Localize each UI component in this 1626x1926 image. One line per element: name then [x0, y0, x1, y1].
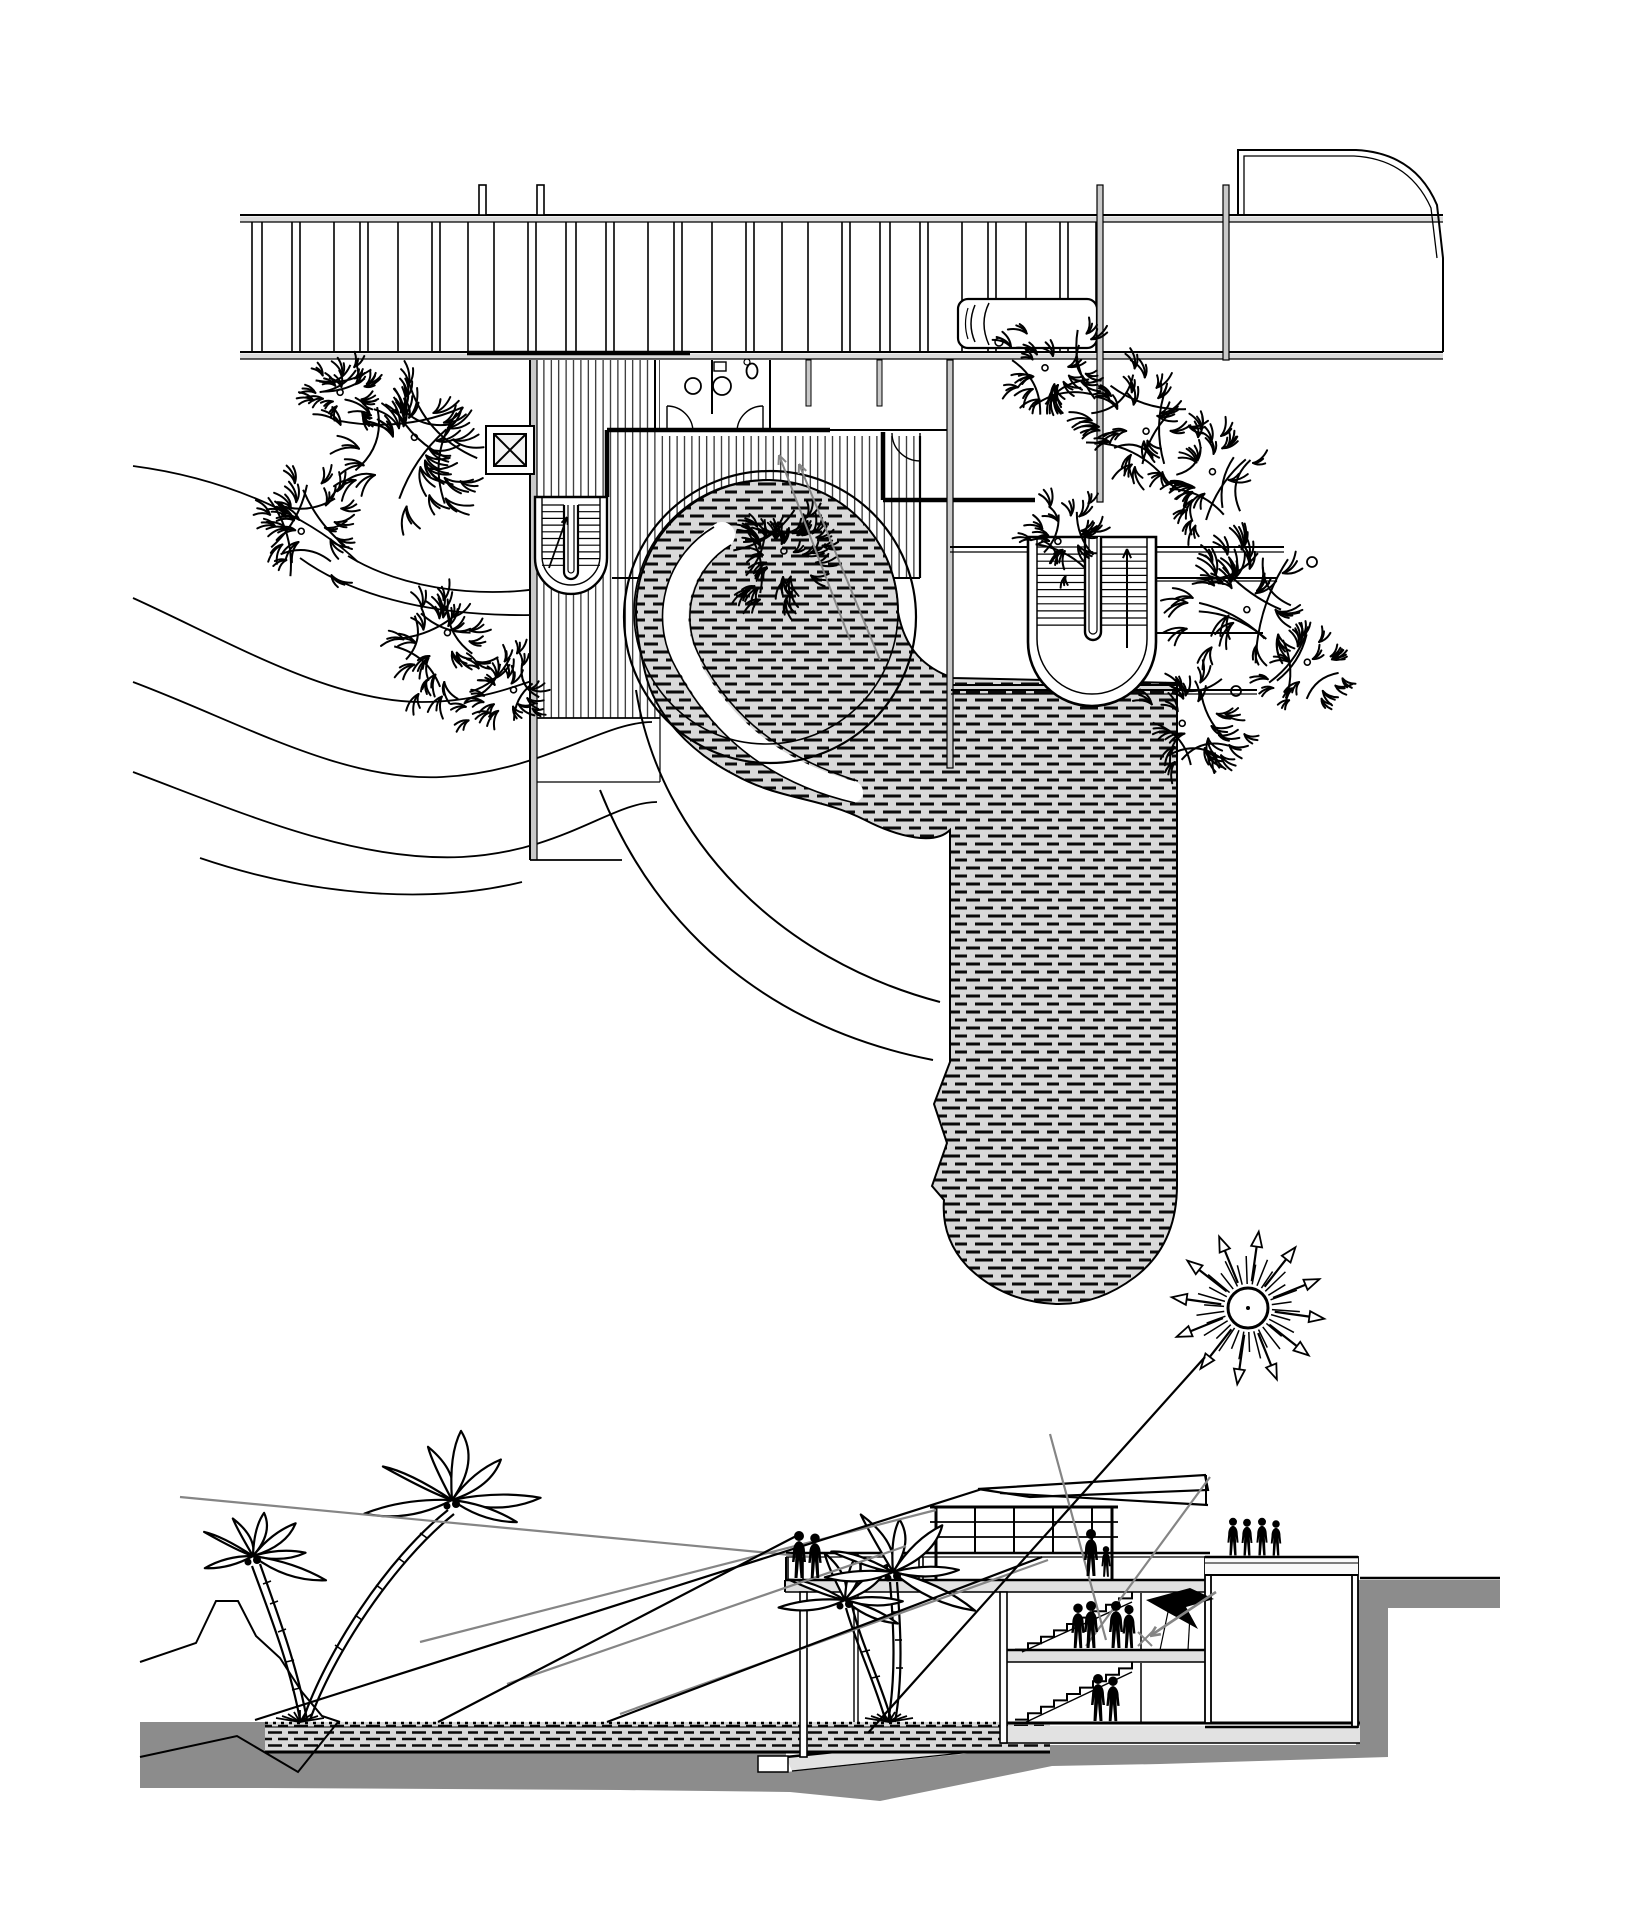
drawing-sheet	[0, 0, 1626, 1926]
plan-tree	[1161, 523, 1302, 669]
person-silhouette	[1242, 1519, 1253, 1556]
person-silhouette	[1227, 1518, 1238, 1556]
plan-tree	[1068, 348, 1208, 489]
plan-tree	[381, 579, 498, 718]
site-plan-view	[133, 150, 1443, 1304]
person-silhouette	[1271, 1520, 1282, 1555]
architectural-drawing	[0, 0, 1626, 1926]
person-silhouette	[1101, 1546, 1110, 1577]
plan-tree	[254, 465, 360, 587]
palm-trees-mid	[779, 1515, 975, 1723]
beach-paving	[265, 1722, 1050, 1752]
person-silhouette	[1109, 1601, 1123, 1648]
section-view	[140, 1357, 1500, 1801]
person-silhouette	[1123, 1605, 1136, 1648]
person-silhouette	[1071, 1603, 1084, 1648]
sun-icon	[1172, 1232, 1325, 1385]
sight-lines	[180, 1357, 1210, 1733]
terrain	[140, 1578, 1500, 1801]
palm-trees-beach	[204, 1431, 540, 1722]
person-silhouette	[1256, 1518, 1267, 1556]
